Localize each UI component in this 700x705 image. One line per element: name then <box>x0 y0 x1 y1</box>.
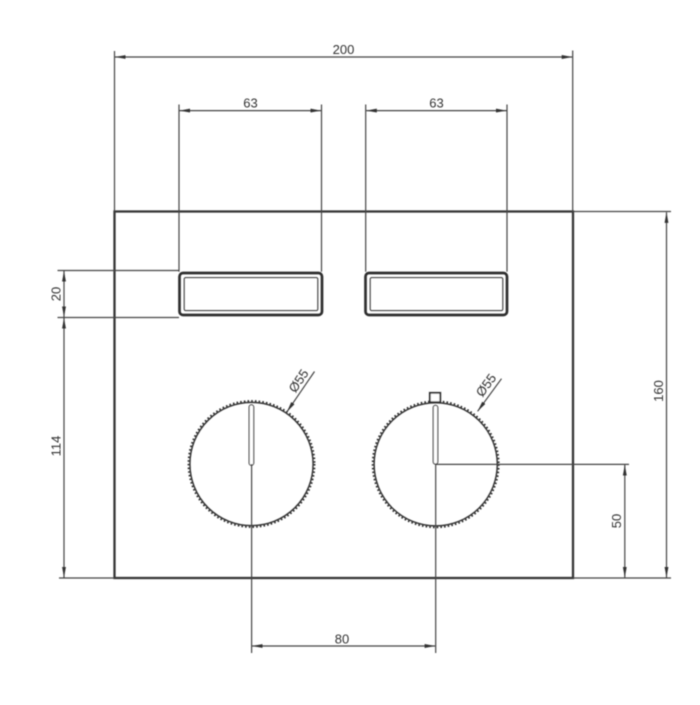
svg-text:20: 20 <box>49 287 64 301</box>
svg-text:63: 63 <box>429 96 443 111</box>
svg-text:200: 200 <box>333 42 355 57</box>
svg-text:50: 50 <box>609 514 624 528</box>
svg-text:160: 160 <box>651 380 666 402</box>
svg-text:114: 114 <box>49 436 64 457</box>
svg-text:80: 80 <box>335 632 349 647</box>
svg-text:63: 63 <box>243 96 257 111</box>
